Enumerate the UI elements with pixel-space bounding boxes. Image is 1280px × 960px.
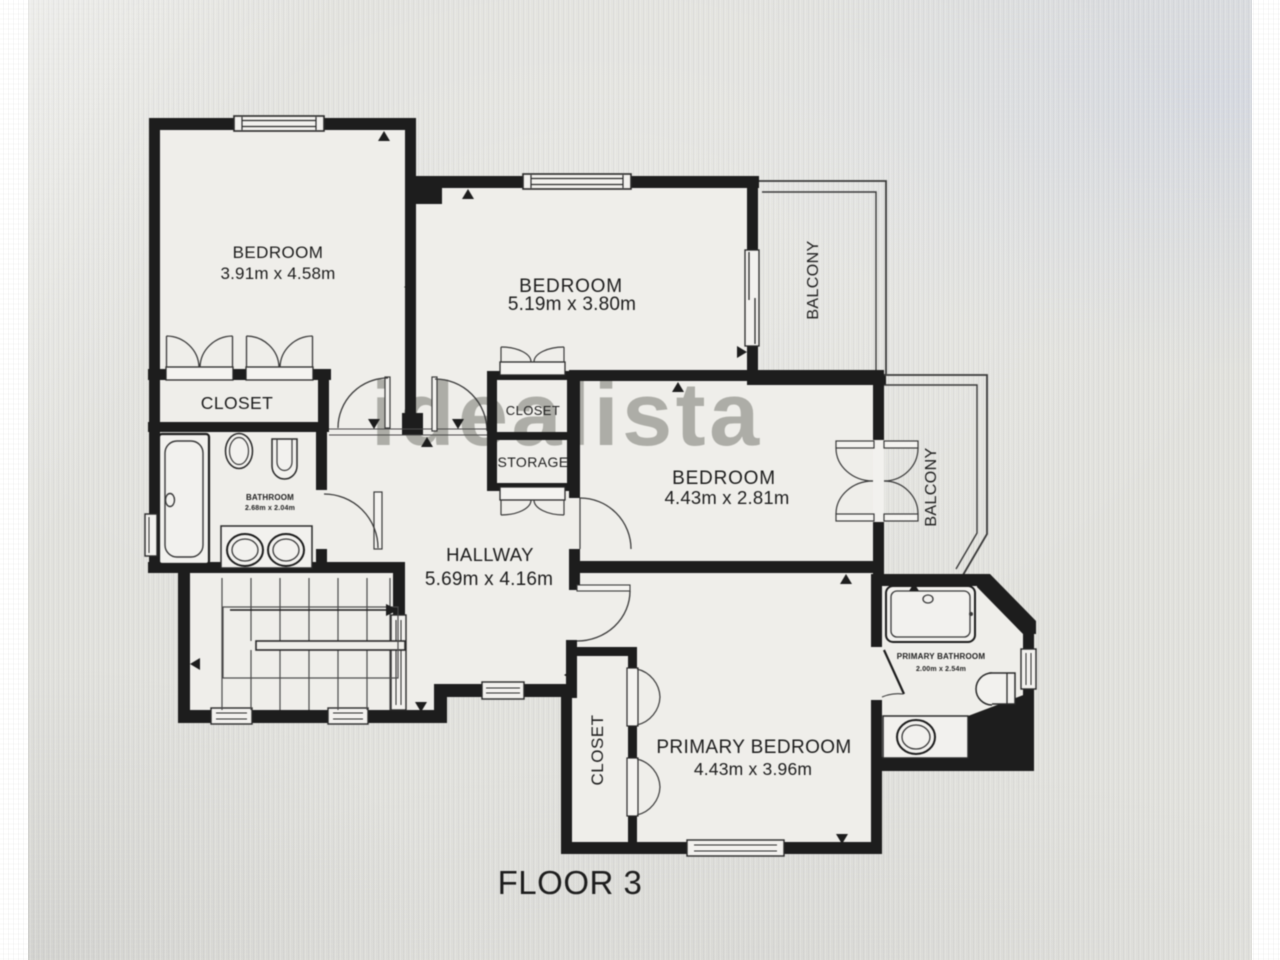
svg-text:FLOOR 3: FLOOR 3 [498,864,643,901]
svg-text:CLOSET: CLOSET [201,393,273,413]
svg-text:PRIMARY BEDROOM: PRIMARY BEDROOM [656,737,851,758]
svg-text:4.43m x 2.81m: 4.43m x 2.81m [665,487,790,508]
svg-text:BEDROOM: BEDROOM [672,468,776,489]
svg-text:PRIMARY BATHROOM: PRIMARY BATHROOM [897,652,986,661]
svg-text:STORAGE: STORAGE [497,454,568,470]
svg-text:BALCONY: BALCONY [923,447,940,526]
svg-text:5.69m x 4.16m: 5.69m x 4.16m [425,569,553,590]
svg-text:5.19m x 3.80m: 5.19m x 3.80m [508,294,636,315]
svg-text:BATHROOM: BATHROOM [246,493,294,502]
svg-text:2.68m x 2.04m: 2.68m x 2.04m [245,505,295,512]
svg-text:3.91m x 4.58m: 3.91m x 4.58m [220,264,335,283]
svg-text:2.00m x 2.54m: 2.00m x 2.54m [916,666,966,673]
svg-text:BALCONY: BALCONY [805,240,822,319]
svg-text:4.43m x 3.96m: 4.43m x 3.96m [694,759,812,779]
svg-text:BEDROOM: BEDROOM [233,243,324,262]
svg-text:HALLWAY: HALLWAY [446,544,534,565]
svg-text:CLOSET: CLOSET [506,403,560,418]
svg-text:CLOSET: CLOSET [588,714,607,785]
